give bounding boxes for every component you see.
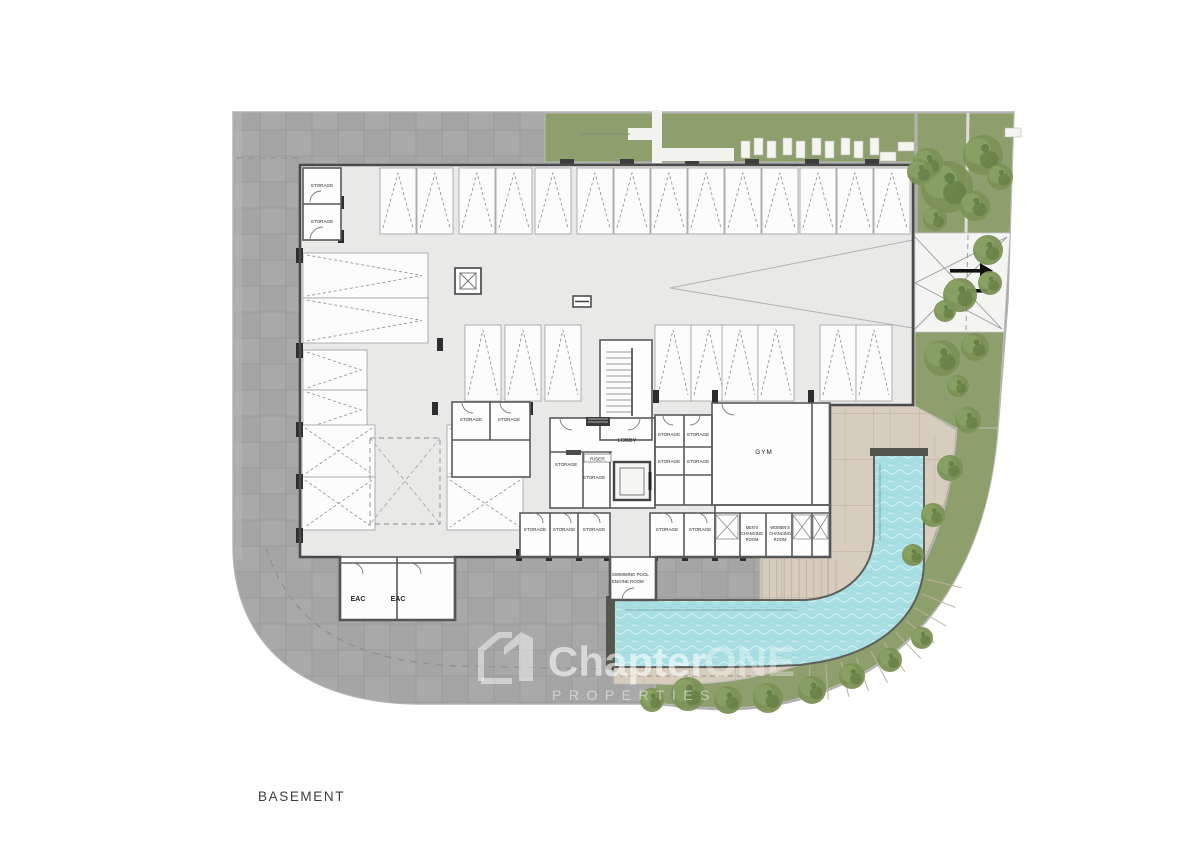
- meter-bank: [586, 417, 610, 426]
- svg-text:SWIMMING POOL: SWIMMING POOL: [612, 572, 649, 577]
- room-label-riser: RISER: [590, 456, 605, 462]
- storage-row-left: [520, 513, 610, 557]
- room-label-storage: STORAGE: [583, 527, 605, 532]
- svg-text:ENGINE ROOM: ENGINE ROOM: [612, 579, 644, 584]
- room-label-storage: STORAGE: [687, 432, 709, 437]
- watermark-subtitle: PROPERTIES: [552, 687, 717, 703]
- room-label-eac: EAC: [351, 596, 366, 603]
- room-label-gym: GYM: [755, 449, 773, 456]
- floor-grille: [573, 296, 591, 307]
- room-label-storage: STORAGE: [553, 527, 575, 532]
- room-label-storage: STORAGE: [583, 475, 605, 480]
- elevator: [614, 462, 650, 500]
- room-label-eac: EAC: [391, 596, 406, 603]
- watermark-brand-2: ONE: [704, 638, 795, 685]
- room-label-storage: STORAGE: [311, 183, 333, 188]
- basement-floor-plan: STORAGE STORAGE STORAGE STORAGE STORAGE …: [0, 0, 1200, 848]
- vent-shaft: [455, 268, 481, 294]
- svg-text:ROOM: ROOM: [746, 537, 759, 542]
- room-label-storage: STORAGE: [689, 527, 711, 532]
- room-label-storage: STORAGE: [687, 459, 709, 464]
- svg-text:CHANGING: CHANGING: [769, 531, 791, 536]
- equipment-grille: [566, 450, 581, 455]
- sidewalk-strip: [233, 112, 242, 560]
- room-label-storage: STORAGE: [656, 527, 678, 532]
- watermark-brand-1: Chapter: [548, 638, 707, 685]
- svg-text:WOMEN'S: WOMEN'S: [770, 525, 790, 530]
- room-label-storage: STORAGE: [460, 417, 482, 422]
- pool-coping: [870, 448, 928, 456]
- room-label-storage: STORAGE: [498, 417, 520, 422]
- svg-text:CHANGING: CHANGING: [741, 531, 763, 536]
- room-label-storage: STORAGE: [555, 462, 577, 467]
- plan-title: BASEMENT: [258, 789, 345, 804]
- room-label-storage: STORAGE: [658, 432, 680, 437]
- room-label-storage: STORAGE: [524, 527, 546, 532]
- svg-text:ROOM: ROOM: [774, 537, 787, 542]
- svg-text:MEN'S: MEN'S: [746, 525, 759, 530]
- room-label-storage: STORAGE: [311, 219, 333, 224]
- room-label-storage: STORAGE: [658, 459, 680, 464]
- storage-row-right: [650, 513, 715, 557]
- room-label-lobby: LOBBY: [618, 438, 637, 444]
